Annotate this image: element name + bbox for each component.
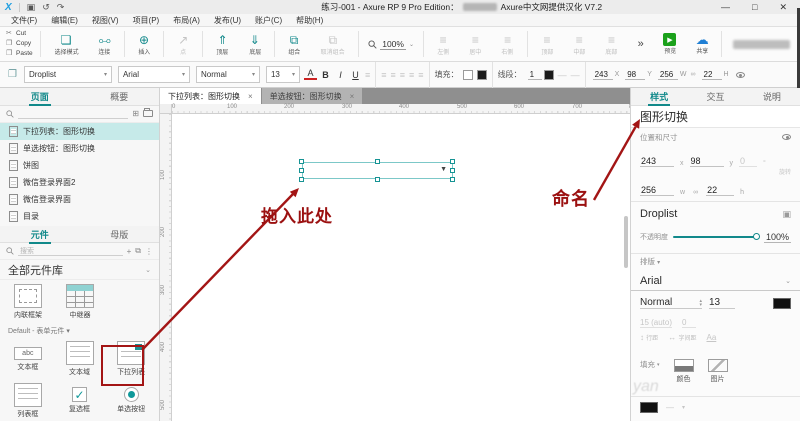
caret-icon: ▾ (657, 260, 660, 266)
align-right-button[interactable]: ≡右侧 (492, 28, 524, 61)
tab-notes[interactable]: 说明 (744, 90, 800, 103)
font-family-dropdown[interactable]: Arial▾ (118, 66, 190, 83)
typography-section: 排版 ▾ (631, 254, 800, 269)
copy-label: Copy (16, 39, 31, 49)
redo-icon[interactable]: ↷ (57, 2, 65, 12)
style-name-row[interactable]: Droplist ▣ (631, 202, 800, 226)
group-label: 组合 (288, 47, 300, 56)
doc-tab-radio[interactable]: 单选按钮：图形切换× (262, 88, 363, 104)
main-toolbar: ✂Cut ❐Copy ❒Paste ❏选择模式 ⧟连接 ⊕插入 ↗点 ⇑顶层 ⇓… (0, 27, 800, 62)
x-label: x (680, 160, 684, 167)
preview-play-icon: ▶ (663, 33, 676, 46)
size-row: 256w ∞ 22h (631, 175, 800, 196)
menu-arrange[interactable]: 布局(A) (166, 15, 207, 26)
opacity-row: 不透明度 100% (631, 226, 800, 248)
text-align-top-icon[interactable]: ≡ (409, 70, 414, 80)
page-item-radio[interactable]: 单选按钮：图形切换 (0, 140, 159, 157)
right-inspector-panel: 样式 交互 说明 图形切换 位置和尺寸 243x 98y 0° 旋转 256w … (630, 88, 800, 421)
options-dots-icon[interactable]: ⋮ (145, 247, 153, 256)
search-icon (6, 110, 14, 118)
caret-icon: ▾ (682, 404, 685, 411)
widget-list-box[interactable]: 列表框 (8, 383, 48, 419)
tab-notes-label: 说明 (763, 92, 781, 102)
page-item-label: 微信登录界面 (23, 194, 71, 205)
form-widgets-grid-row1: abc文本框 文本域 下拉列表 (0, 337, 159, 379)
opacity-value[interactable]: 100% (764, 232, 791, 243)
opacity-slider-knob[interactable] (753, 233, 760, 240)
insert-button[interactable]: ⊕插入 (128, 28, 160, 61)
chevron-down-icon: ⌄ (785, 277, 791, 285)
doc-tab-label: 下拉列表：图形切换 (168, 91, 240, 102)
widget-label: 单选按钮 (117, 404, 145, 414)
selection-handle[interactable] (450, 159, 455, 164)
divider (492, 62, 493, 88)
tab-interaction[interactable]: 交互 (687, 90, 743, 103)
font-weight-value: Normal (640, 297, 672, 308)
tab-outline[interactable]: 概要 (80, 90, 160, 103)
line-color-swatch[interactable] (544, 70, 554, 80)
ruler-corner (160, 104, 172, 114)
window-title-right: Axure中文网提供汉化 V7.2 (501, 1, 603, 13)
add-page-icon[interactable]: ⊞ (132, 109, 139, 118)
page-icon (9, 126, 18, 137)
ruler-label: 200 (284, 104, 294, 110)
tab-outline-label: 概要 (110, 92, 128, 102)
typography-label: 排版 (640, 257, 655, 266)
maximize-button[interactable]: □ (752, 2, 757, 13)
widget-droplist[interactable]: 下拉列表 (111, 341, 151, 377)
close-tab-icon[interactable]: × (248, 92, 253, 101)
clipboard-group: ✂Cut ❐Copy ❒Paste (2, 28, 37, 61)
italic-button[interactable]: I (334, 70, 347, 80)
page-item-label: 目录 (23, 211, 39, 222)
divider (585, 62, 586, 88)
section-header-label: Default - 表单元件 (8, 328, 64, 335)
page-item-label: 单选按钮：图形切换 (23, 143, 95, 154)
position-size-section: 位置和尺寸 (631, 128, 800, 146)
line-color-swatch[interactable] (640, 402, 658, 413)
widget-radio-button[interactable]: 单选按钮 (111, 383, 151, 419)
letter-spacing-value[interactable]: 0 (682, 318, 696, 328)
x-label: X (615, 71, 620, 78)
user-account-redacted[interactable] (733, 40, 790, 49)
share-cloud-icon: ☁ (696, 33, 709, 46)
tab-style[interactable]: 样式 (631, 90, 687, 103)
widget-text-area[interactable]: 文本域 (60, 341, 100, 377)
menu-help[interactable]: 帮助(H) (289, 15, 330, 26)
divider (163, 31, 164, 57)
x-field[interactable]: 243 (593, 70, 613, 80)
ruler-label: 100 (227, 104, 237, 110)
minimize-button[interactable]: — (721, 2, 730, 13)
ruler-label: 100 (160, 170, 166, 180)
page-icon (9, 177, 18, 188)
droplist-arrow-icon: ▼ (440, 166, 447, 173)
library-grid: 内联框架 中继器 (0, 280, 159, 322)
cut-icon: ✂ (6, 29, 13, 39)
search-icon (6, 247, 14, 255)
group-icon: ⧉ (290, 33, 299, 47)
underline-button[interactable]: U (349, 70, 362, 80)
window-title-left: 练习-001 - Axure RP 9 Pro Edition： (321, 1, 458, 13)
bullet-list-icon[interactable]: ≡ (365, 70, 370, 80)
format-bar: ❐ Droplist▾ Arial▾ Normal▾ 13▾ A B I U ≡… (0, 62, 800, 88)
link-dimensions-icon[interactable]: ∞ (691, 71, 696, 78)
paste-label: Paste (16, 49, 33, 59)
font-family-value: Arial (640, 275, 662, 287)
letter-spacing-icon[interactable]: ↔ 字间距 (668, 333, 696, 342)
caret-icon: ▾ (104, 71, 107, 78)
ruler-label: 300 (342, 104, 352, 110)
divider (274, 31, 275, 57)
opacity-label: 不透明度 (640, 232, 668, 242)
align-right-icon: ≡ (504, 33, 511, 47)
tab-pages[interactable]: 页面 (0, 90, 80, 103)
share-button[interactable]: ☁共享 (686, 28, 718, 61)
widget-label: 内联框架 (14, 310, 42, 320)
align-bottom-button[interactable]: ≡底部 (595, 28, 627, 61)
arrow-style-icon[interactable]: — (571, 70, 580, 80)
paste-icon: ❒ (6, 49, 13, 59)
add-folder-icon[interactable] (143, 110, 153, 117)
zoom-control[interactable]: 100% ⌄ (362, 39, 420, 50)
h-label: h (740, 189, 744, 196)
align-center-icon: ≡ (472, 33, 479, 47)
page-icon (9, 143, 18, 154)
ungroup-button[interactable]: ⧉取消组合 (310, 28, 355, 61)
connect-button[interactable]: ⧟连接 (89, 28, 121, 61)
library-section-header[interactable]: Default - 表单元件 ▾ (0, 322, 159, 337)
point-icon: ↗ (178, 33, 188, 47)
style-name-value: Droplist (640, 208, 677, 220)
document-tabs: 下拉列表：图形切换× 单选按钮：图形切换× (160, 88, 630, 104)
menu-edit[interactable]: 编辑(E) (44, 15, 85, 26)
inspector-tabs: 样式 交互 说明 (631, 88, 800, 106)
menu-file[interactable]: 文件(F) (4, 15, 44, 26)
send-back-button[interactable]: ⇓底层 (239, 28, 271, 61)
h-label: H (724, 71, 729, 78)
chevron-down-icon: ⌄ (409, 41, 414, 48)
line-section-partial: — ▾ (631, 396, 800, 413)
page-item-toc[interactable]: 目录 (0, 208, 159, 225)
font-weight-select[interactable]: Normal▴▾ (640, 297, 702, 309)
align-right-label: 右侧 (502, 47, 514, 56)
fill-color-button[interactable]: 颜色 (674, 359, 694, 384)
text-align-left-icon[interactable]: ≡ (381, 70, 386, 80)
fill-color-swatch[interactable] (463, 70, 473, 80)
text-color-button[interactable]: A (304, 69, 317, 80)
line-style-icon[interactable]: — (666, 403, 674, 412)
send-back-label: 底层 (249, 47, 261, 56)
font-family-row[interactable]: Arial ⌄ (631, 271, 800, 291)
preview-label: 预览 (664, 46, 676, 55)
link-dimensions-icon[interactable]: ∞ (693, 189, 698, 196)
ruler-label: 200 (160, 227, 166, 237)
page-tree: 下拉列表：图形切换 单选按钮：图形切换 饼图 微信登录界面2 微信登录界面 目录 (0, 123, 159, 226)
share-label: 共享 (696, 46, 708, 55)
insert-icon: ⊕ (139, 33, 149, 47)
menu-view[interactable]: 视图(V) (85, 15, 126, 26)
widget-checkbox[interactable]: ✓复选框 (60, 383, 100, 419)
w-label: W (680, 71, 687, 78)
ruler-label: 500 (160, 400, 166, 410)
selection-handle[interactable] (450, 177, 455, 182)
ruler-label: 600 (514, 104, 524, 110)
divider (202, 31, 203, 57)
y-input[interactable]: 98 (690, 156, 724, 167)
divider (429, 62, 430, 88)
align-top-label: 顶部 (541, 47, 553, 56)
widget-inline-frame[interactable]: 内联框架 (8, 284, 48, 320)
divider (19, 3, 20, 12)
checkbox-icon: ✓ (72, 387, 87, 402)
tab-style-label: 样式 (648, 92, 670, 106)
position-row: 243x 98y 0° (631, 146, 800, 167)
caret-icon: ▾ (292, 71, 295, 78)
title-bar: X ▣ ↺ ↷ 练习-001 - Axure RP 9 Pro Edition：… (0, 0, 800, 14)
widget-text-field[interactable]: abc文本框 (8, 341, 48, 377)
spacing-icons-row: ↕ 行距 ↔ 字间距 Aa (631, 330, 800, 345)
ruler-label: 500 (457, 104, 467, 110)
image-fill-icon (708, 359, 728, 372)
point-button[interactable]: ↗点 (167, 28, 199, 61)
bring-front-label: 顶层 (217, 47, 229, 56)
paste-button[interactable]: ❒Paste (6, 49, 33, 59)
horizontal-ruler: 0 100 200 300 400 500 600 700 800 (172, 104, 630, 114)
y-label: y (730, 160, 734, 167)
line-style-icon[interactable]: — (558, 70, 567, 80)
connect-icon: ⧟ (99, 33, 111, 47)
w-label: w (680, 189, 685, 196)
fill-section: 填充▾ 颜色 图片 (631, 359, 800, 384)
doc-tab-label: 单选按钮：图形切换 (270, 91, 342, 102)
selection-handle[interactable] (375, 177, 380, 182)
widget-name-input[interactable]: 图形切换 (631, 106, 800, 128)
width-field[interactable]: 256 (658, 70, 678, 80)
bring-front-icon: ⇑ (218, 33, 228, 47)
select-mode-label: 选择模式 (54, 47, 78, 56)
form-widgets-grid-row2: 列表框 ✓复选框 单选按钮 (0, 379, 159, 421)
widgets-search-row: 搜索 + ⧉ ⋮ (0, 243, 159, 260)
selection-handle[interactable] (450, 168, 455, 173)
fill-section-label: 填充▾ (640, 359, 660, 370)
group-button[interactable]: ⧉组合 (278, 28, 310, 61)
page-item-label: 下拉列表：图形切换 (23, 126, 95, 137)
fill-label: 填充： (435, 69, 459, 80)
save-icon[interactable]: ▣ (27, 2, 36, 12)
stepper-icon[interactable]: ▴▾ (699, 299, 702, 307)
widgets-search-input[interactable]: 搜索 (18, 246, 123, 256)
tab-widgets[interactable]: 元件 (0, 228, 80, 241)
more-tools-button[interactable]: » (628, 38, 654, 50)
fill-image-button[interactable]: 图片 (708, 359, 728, 384)
text-align-bottom-icon[interactable]: ≡ (418, 70, 423, 80)
font-color-swatch[interactable] (773, 298, 791, 309)
divider (721, 31, 722, 57)
font-weight-row: Normal▴▾ 13 (631, 291, 800, 315)
insert-label: 插入 (138, 47, 150, 56)
y-field[interactable]: 98 (625, 70, 645, 80)
align-left-icon: ≡ (440, 33, 447, 47)
align-middle-button[interactable]: ≡中部 (563, 28, 595, 61)
page-item-pie[interactable]: 饼图 (0, 157, 159, 174)
magnifier-icon (368, 40, 377, 49)
visibility-eye-icon[interactable] (782, 134, 791, 140)
color-button-label: 颜色 (677, 374, 691, 384)
divider (375, 62, 376, 88)
page-item-wechat2[interactable]: 微信登录界面2 (0, 174, 159, 191)
select-mode-button[interactable]: ❏选择模式 (44, 28, 89, 61)
add-library-icon[interactable]: + (127, 247, 132, 256)
pages-search-input[interactable] (18, 109, 128, 119)
widget-style-value: Droplist (29, 70, 56, 79)
align-bottom-label: 底部 (606, 47, 618, 56)
caret-icon: ▾ (657, 362, 660, 368)
copy-button[interactable]: ❐Copy (6, 39, 33, 49)
x-input[interactable]: 243 (640, 156, 674, 167)
text-field-icon: abc (14, 347, 42, 360)
selection-handle[interactable] (299, 168, 304, 173)
point-label: 点 (180, 47, 186, 56)
font-size-input[interactable]: 13 (709, 297, 735, 309)
tab-masters[interactable]: 母版 (80, 228, 160, 241)
opacity-slider[interactable] (673, 236, 759, 238)
cut-button[interactable]: ✂Cut (6, 29, 33, 39)
ruler-label: 0 (172, 104, 175, 110)
divider (423, 31, 424, 57)
canvas-vertical-scrollbar[interactable] (624, 216, 628, 268)
tab-masters-label: 母版 (110, 230, 128, 240)
copy-icon: ❐ (6, 39, 13, 49)
menu-account[interactable]: 账户(C) (248, 15, 289, 26)
window-title: 练习-001 - Axure RP 9 Pro Edition： Axure中文… (321, 1, 602, 13)
line-height-value[interactable]: 15 (auto) (640, 318, 672, 328)
line-label: 线段： (498, 69, 522, 80)
align-left-label: 左侧 (437, 47, 449, 56)
send-back-icon: ⇓ (250, 33, 260, 47)
align-bottom-icon: ≡ (608, 33, 615, 47)
widget-label: 文本域 (69, 367, 90, 377)
degree-icon: ° (763, 160, 766, 167)
ruler-label: 400 (160, 342, 166, 352)
line-height-icon[interactable]: ↕ 行距 (640, 333, 658, 342)
tab-widgets-label: 元件 (29, 230, 51, 244)
connect-label: 连接 (99, 47, 111, 56)
spacing-values-row: 15 (auto) 0 (631, 315, 800, 330)
font-size-value: 13 (271, 70, 280, 79)
font-weight-dropdown[interactable]: Normal▾ (196, 66, 260, 83)
close-button[interactable]: ✕ (779, 2, 787, 13)
bold-button[interactable]: B (319, 70, 332, 80)
library-stack-icon[interactable]: ⧉ (135, 246, 141, 256)
selection-handle[interactable] (375, 159, 380, 164)
widget-label: 列表框 (17, 409, 38, 419)
widget-label: 文本框 (17, 362, 38, 372)
left-sidebar: 页面 概要 ⊞ 下拉列表：图形切换 单选按钮：图形切换 饼图 微信登录界面2 微… (0, 88, 160, 421)
widget-label: 复选框 (69, 404, 90, 414)
align-top-icon: ≡ (543, 33, 550, 47)
rotation-label: 旋转 (631, 167, 800, 175)
inline-frame-icon (14, 284, 42, 308)
widget-style-dropdown[interactable]: Droplist▾ (24, 66, 112, 83)
position-size-label: 位置和尺寸 (640, 132, 678, 143)
caret-icon: ▾ (182, 71, 185, 78)
library-header[interactable]: 全部元件库 ⌄ (0, 260, 159, 280)
select-mode-icon: ❏ (61, 33, 72, 47)
align-left-button[interactable]: ≡左侧 (427, 28, 459, 61)
visibility-eye-icon[interactable] (736, 72, 745, 78)
page-item-droplist[interactable]: 下拉列表：图形切换 (0, 123, 159, 140)
ruler-label: 700 (572, 104, 582, 110)
selection-handle[interactable] (299, 177, 304, 182)
align-top-button[interactable]: ≡顶部 (531, 28, 563, 61)
ungroup-icon: ⧉ (328, 33, 337, 47)
menu-project[interactable]: 项目(P) (126, 15, 167, 26)
align-middle-icon: ≡ (576, 33, 583, 47)
letter-spacing-label: 字间距 (678, 336, 696, 342)
height-field[interactable]: 22 (702, 70, 722, 80)
library-header-label: 全部元件库 (8, 262, 63, 278)
repeater-icon (66, 284, 94, 308)
line-weight-field[interactable]: 1 (528, 70, 542, 80)
redacted-title-text (463, 3, 497, 11)
divider (527, 31, 528, 57)
rotation-input[interactable]: 0 (739, 156, 757, 167)
width-input[interactable]: 256 (640, 185, 674, 196)
vertical-ruler: 100 200 300 400 500 (160, 114, 172, 421)
fill-color-swatch-dark[interactable] (477, 70, 487, 80)
menu-bar: 文件(F) 编辑(E) 视图(V) 项目(P) 布局(A) 发布(U) 账户(C… (0, 14, 800, 27)
zoom-value[interactable]: 100% (380, 39, 406, 50)
page-item-label: 饼图 (23, 160, 39, 171)
font-size-dropdown[interactable]: 13▾ (266, 66, 300, 83)
page-item-wechat[interactable]: 微信登录界面 (0, 191, 159, 208)
close-tab-icon[interactable]: × (350, 92, 355, 101)
menu-publish[interactable]: 发布(U) (207, 15, 248, 26)
color-fill-icon (674, 359, 694, 372)
divider (40, 31, 41, 57)
caret-icon: ▾ (252, 71, 255, 78)
image-button-label: 图片 (711, 374, 725, 384)
height-input[interactable]: 22 (706, 185, 734, 196)
preview-button[interactable]: ▶预览 (654, 28, 686, 61)
text-align-right-icon[interactable]: ≡ (400, 70, 405, 80)
page-icon (9, 211, 18, 222)
edit-style-icon[interactable]: ▣ (782, 209, 791, 220)
cut-label: Cut (16, 29, 26, 39)
style-brush-icon[interactable]: ❐ (8, 69, 17, 80)
page-icon (9, 160, 18, 171)
canvas-area[interactable]: 下拉列表：图形切换× 单选按钮：图形切换× 0 100 200 300 400 … (160, 88, 630, 421)
tab-interaction-label: 交互 (706, 92, 724, 102)
y-label: Y (647, 71, 652, 78)
divider (124, 31, 125, 57)
text-case-icon[interactable]: Aa (707, 333, 717, 342)
align-center-label: 居中 (469, 47, 481, 56)
selection-handle[interactable] (299, 159, 304, 164)
bring-front-button[interactable]: ⇑顶层 (206, 28, 238, 61)
axure-logo-icon: X (5, 2, 12, 13)
ruler-label: 400 (399, 104, 409, 110)
align-center-button[interactable]: ≡居中 (459, 28, 491, 61)
pages-search-row: ⊞ (0, 106, 159, 123)
doc-tab-droplist[interactable]: 下拉列表：图形切换× (160, 88, 261, 104)
page-item-label: 微信登录界面2 (23, 177, 75, 188)
undo-icon[interactable]: ↺ (42, 2, 50, 12)
text-align-center-icon[interactable]: ≡ (391, 70, 396, 80)
widget-repeater[interactable]: 中继器 (60, 284, 100, 320)
ungroup-label: 取消组合 (321, 47, 345, 56)
